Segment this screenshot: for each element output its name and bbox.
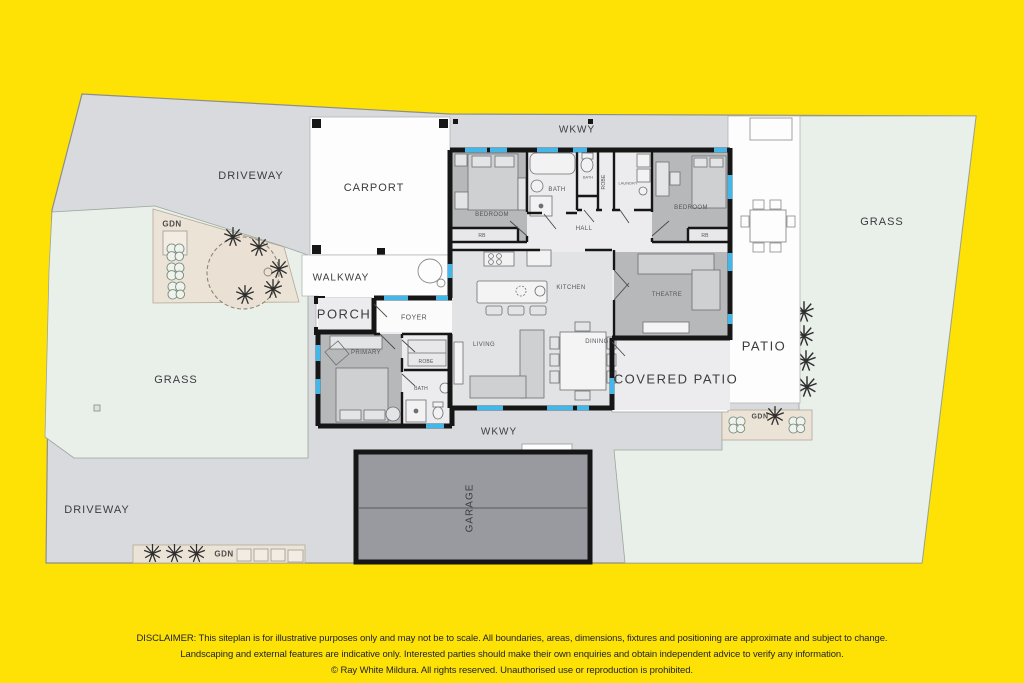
disclaimer-line-3: © Ray White Mildura. All rights reserved… [0, 663, 1024, 679]
disclaimer-text: DISCLAIMER: This siteplan is for illustr… [0, 631, 1024, 679]
label-primary: PRIMARY [351, 350, 381, 356]
label-robe-primary: ROBE [419, 359, 434, 365]
floorplan-svg [0, 0, 1024, 683]
label-driveway-bottom: DRIVEWAY [64, 504, 129, 516]
label-garage: GARAGE [465, 484, 476, 533]
siteplan-page: DRIVEWAY CARPORT WKWY GDN WALKWAY PORCH … [0, 0, 1024, 683]
label-gdn-top: GDN [162, 220, 181, 229]
disclaimer-line-1: DISCLAIMER: This siteplan is for illustr… [0, 631, 1024, 647]
label-bedroom-left: BEDROOM [475, 212, 509, 218]
label-porch: PORCH [317, 307, 371, 322]
label-grass-right: GRASS [860, 216, 904, 228]
label-grass-left: GRASS [154, 374, 198, 386]
garden-bed-right [722, 406, 812, 440]
label-bedroom-right: BEDROOM [674, 205, 708, 211]
label-rb-right: RB [701, 233, 708, 239]
label-foyer: FOYER [401, 315, 427, 322]
label-walkway: WALKWAY [313, 273, 370, 284]
label-covered-patio: COVERED PATIO [614, 372, 738, 387]
label-bath-main: BATH [548, 187, 565, 193]
patio-area [728, 116, 800, 403]
label-wkwy-top: WKWY [559, 125, 595, 136]
label-carport: CARPORT [344, 182, 405, 194]
label-kitchen: KITCHEN [556, 285, 585, 291]
label-rb-left: RB [478, 233, 485, 239]
label-living: LIVING [473, 342, 495, 348]
label-dining: DINING [585, 339, 608, 345]
label-driveway-top: DRIVEWAY [218, 170, 283, 182]
label-patio: PATIO [742, 339, 787, 354]
label-robe-hall: ROBE [601, 175, 607, 190]
label-wkwy-bottom: WKWY [481, 427, 517, 438]
label-gdn-bottom: GDN [214, 550, 233, 559]
label-laundry: LAUNDRY [618, 181, 637, 186]
disclaimer-line-2: Landscaping and external features are in… [0, 647, 1024, 663]
label-hall: HALL [576, 226, 593, 232]
label-theatre: THEATRE [652, 292, 682, 298]
label-bath-primary: BATH [414, 386, 428, 392]
label-gdn-right: GDN [751, 414, 768, 421]
label-wc: BATH [583, 175, 593, 180]
